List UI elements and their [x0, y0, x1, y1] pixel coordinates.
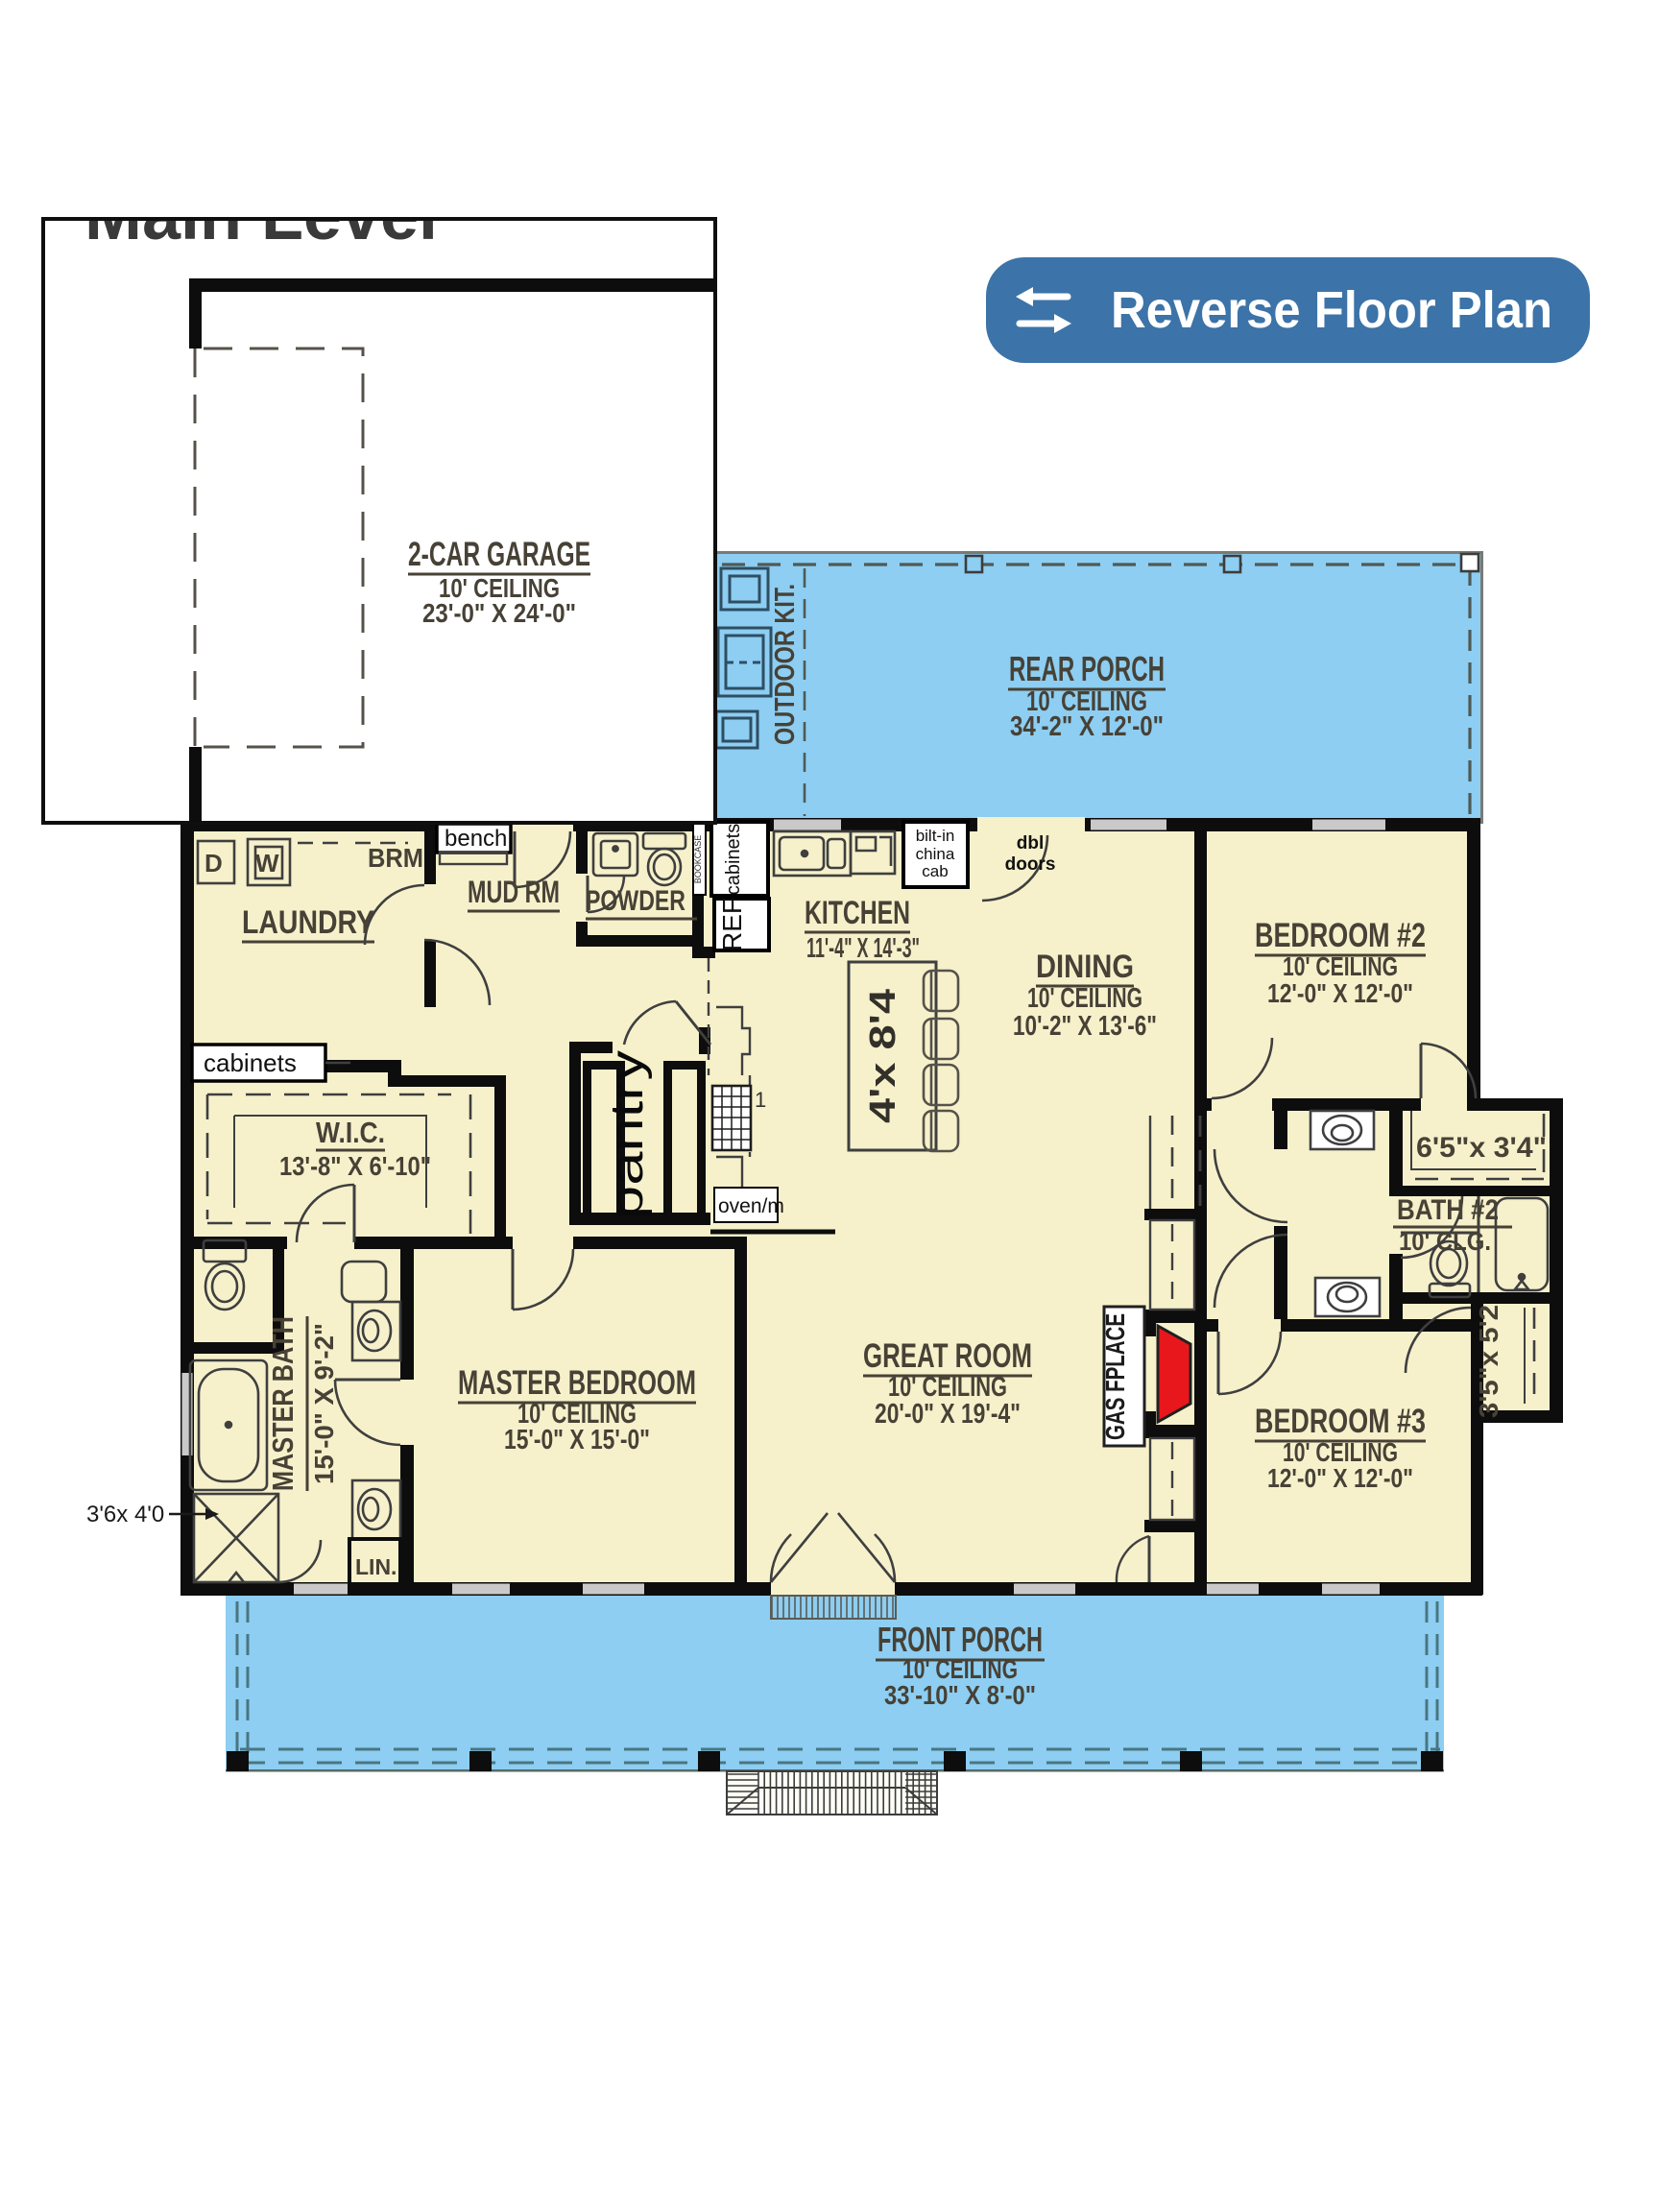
svg-text:6'5"x 3'4": 6'5"x 3'4" [1416, 1132, 1547, 1164]
svg-text:GAS FPLACE: GAS FPLACE [1100, 1313, 1130, 1440]
svg-text:cab: cab [922, 862, 948, 880]
svg-text:doors: doors [1005, 854, 1056, 875]
svg-text:MASTER BATH: MASTER BATH [266, 1316, 300, 1491]
svg-text:BRM: BRM [368, 843, 423, 873]
svg-text:cabinets: cabinets [723, 824, 744, 896]
svg-text:BOOKCASE: BOOKCASE [693, 835, 703, 884]
svg-text:MASTER BEDROOM: MASTER BEDROOM [458, 1364, 696, 1402]
svg-text:dbl: dbl [1017, 833, 1045, 854]
svg-text:D: D [204, 849, 223, 878]
svg-text:3'5"x 5'2: 3'5"x 5'2 [1474, 1305, 1503, 1418]
svg-text:KITCHEN: KITCHEN [805, 895, 910, 931]
svg-text:LIN.: LIN. [355, 1554, 397, 1579]
svg-text:FRONT PORCH: FRONT PORCH [878, 1620, 1043, 1659]
svg-text:pantry: pantry [602, 1050, 653, 1219]
svg-text:REAR PORCH: REAR PORCH [1009, 649, 1165, 688]
svg-text:oven/m: oven/m [718, 1195, 784, 1217]
svg-text:LAUNDRY: LAUNDRY [242, 904, 374, 941]
svg-text:GREAT ROOM: GREAT ROOM [863, 1337, 1032, 1375]
svg-text:12'-0" X 12'-0": 12'-0" X 12'-0" [1267, 978, 1413, 1008]
svg-text:BEDROOM #3: BEDROOM #3 [1255, 1403, 1426, 1440]
svg-text:OUTDOOR KIT.: OUTDOOR KIT. [770, 584, 801, 745]
svg-text:23'-0" X 24'-0": 23'-0" X 24'-0" [422, 598, 576, 628]
svg-text:MUD RM: MUD RM [468, 875, 560, 909]
svg-text:3'6x 4'0: 3'6x 4'0 [86, 1502, 164, 1527]
svg-text:12'-0" X 12'-0": 12'-0" X 12'-0" [1267, 1463, 1413, 1493]
svg-text:4'x 8'4: 4'x 8'4 [863, 989, 903, 1123]
svg-text:10' CEILING: 10' CEILING [1027, 983, 1142, 1014]
svg-text:33'-10" X 8'-0": 33'-10" X 8'-0" [884, 1680, 1036, 1710]
svg-text:DINING: DINING [1036, 949, 1134, 985]
svg-text:2-CAR GARAGE: 2-CAR GARAGE [408, 536, 590, 573]
svg-text:china: china [916, 845, 955, 863]
svg-text:bilt-in: bilt-in [916, 827, 955, 845]
svg-text:10' CEILING: 10' CEILING [1283, 951, 1398, 981]
svg-text:10'-2" X 13'-6": 10'-2" X 13'-6" [1013, 1011, 1157, 1042]
svg-text:Reverse Floor Plan: Reverse Floor Plan [1111, 281, 1552, 339]
svg-text:20'-0" X 19'-4": 20'-0" X 19'-4" [875, 1399, 1021, 1430]
svg-text:Main Level: Main Level [84, 175, 438, 254]
svg-text:BATH #2: BATH #2 [1397, 1194, 1499, 1226]
svg-text:POWDER: POWDER [586, 885, 685, 917]
svg-text:bench: bench [445, 826, 507, 852]
svg-text:W: W [255, 849, 279, 878]
svg-text:cabinets: cabinets [204, 1048, 297, 1077]
svg-text:1: 1 [755, 1088, 766, 1112]
svg-text:11'-4" X 14'-3": 11'-4" X 14'-3" [806, 933, 920, 964]
svg-text:13'-8" X 6'-10": 13'-8" X 6'-10" [279, 1151, 431, 1181]
svg-text:REF: REF [717, 898, 747, 951]
svg-text:BEDROOM #2: BEDROOM #2 [1255, 917, 1426, 954]
svg-text:15'-0" X 9'-2": 15'-0" X 9'-2" [309, 1323, 339, 1484]
svg-text:W.I.C.: W.I.C. [316, 1116, 385, 1149]
svg-text:34'-2" X 12'-0": 34'-2" X 12'-0" [1010, 711, 1164, 742]
svg-text:15'-0" X 15'-0": 15'-0" X 15'-0" [504, 1425, 650, 1455]
